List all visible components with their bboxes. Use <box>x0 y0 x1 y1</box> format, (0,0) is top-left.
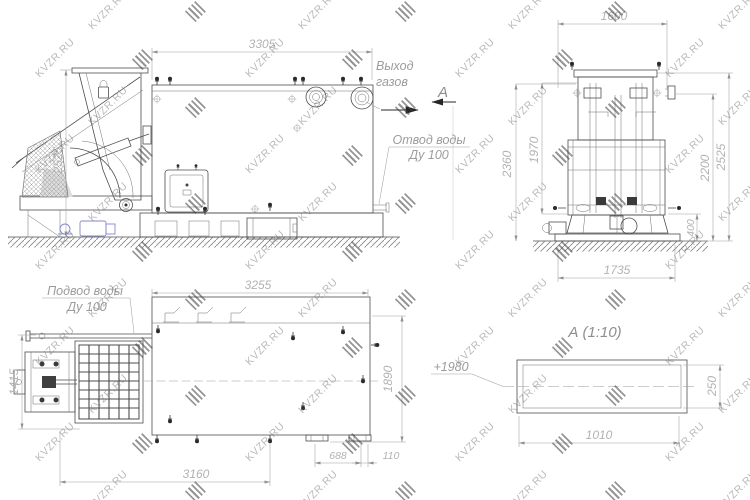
base-frame <box>20 196 389 239</box>
dim-front-2525: 2525 <box>714 143 728 171</box>
label-water-supply-2: Ду 100 <box>65 300 107 314</box>
top-valves <box>155 77 363 85</box>
boiler-body <box>152 85 373 213</box>
label-water-supply-1: Подвод воды <box>47 284 123 298</box>
detail-view: А (1:10) +1980 1010 250 <box>431 324 724 447</box>
dim-side-height: 2525 <box>51 146 65 174</box>
drive-motor <box>58 199 133 237</box>
dim-side-width: 3305 <box>249 37 276 51</box>
dim-front-width: 1600 <box>601 9 628 23</box>
plan-view: 3255 1415 1890 3160 688 110 Подвод воды … <box>7 278 406 486</box>
gas-outlet-flange <box>306 87 373 109</box>
plan-valves <box>155 325 379 443</box>
plan-labels: Подвод воды Ду 100 <box>42 284 134 333</box>
manhole-door <box>165 164 208 212</box>
water-supply-pipe <box>30 334 152 338</box>
label-water-outlet-1: Отвод воды <box>392 133 465 147</box>
label-water-outlet-2: Ду 100 <box>407 148 449 162</box>
dim-detail-height: 250 <box>705 376 719 397</box>
detail-title: А (1:10) <box>567 324 621 341</box>
dim-front-2360: 2360 <box>500 150 514 178</box>
dim-plan-offset: 110 <box>383 450 400 462</box>
front-view: 1600 1970 2360 400 2200 2525 1735 <box>500 9 733 282</box>
dim-plan-length: 3160 <box>183 467 210 481</box>
grate-assembly <box>75 341 143 423</box>
label-gas-outlet-1: Выход <box>376 59 414 73</box>
side-dimensions: 3305 2525 <box>51 37 372 237</box>
dim-plan-width: 3255 <box>245 278 272 292</box>
stoker-mechanism <box>14 352 77 412</box>
dim-detail-width: 1010 <box>586 428 613 442</box>
dim-front-400: 400 <box>685 219 697 237</box>
lock-icon <box>100 81 107 87</box>
dim-front-base: 1735 <box>604 263 631 277</box>
dim-plan-feet: 688 <box>329 450 347 462</box>
elevation-mark: +1980 <box>433 360 468 374</box>
label-gas-outlet-2: газов <box>376 75 408 89</box>
dim-front-1970: 1970 <box>527 136 541 163</box>
ground-hatch <box>8 238 400 248</box>
section-letter: А <box>437 84 448 101</box>
technical-drawing: 3305 2525 Выход газов А Отвод воды Ду 10… <box>0 0 750 500</box>
pump <box>621 218 637 234</box>
dim-plan-body: 1890 <box>381 365 395 392</box>
side-view: 3305 2525 Выход газов А Отвод воды Ду 10… <box>8 37 470 248</box>
drawing-canvas: 3305 2525 Выход газов А Отвод воды Ду 10… <box>0 0 750 500</box>
fuel-hopper <box>12 68 151 200</box>
body-plan <box>152 297 370 435</box>
boiler-body-front <box>568 140 665 215</box>
dim-plan-stoker: 1415 <box>7 368 21 395</box>
dim-front-2200: 2200 <box>698 154 712 182</box>
